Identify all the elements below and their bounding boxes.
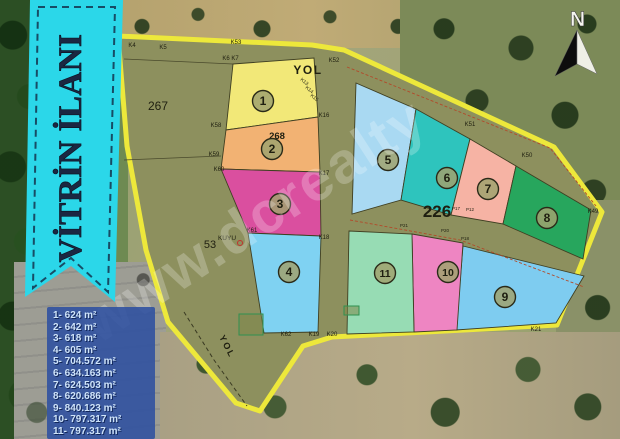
parcel-9-number: 9 <box>502 290 509 304</box>
parcel-11-badge: 11 <box>375 263 396 284</box>
map-point-label: K62 <box>281 332 292 338</box>
parcel-1-number: 1 <box>260 94 267 108</box>
parcel-6-badge: 6 <box>437 168 458 189</box>
map-point-label: P17 <box>452 206 461 211</box>
map-point-label: P20 <box>441 228 450 233</box>
map-point-label: K61 <box>247 228 258 234</box>
structure-rect-large <box>239 314 263 335</box>
listing-image: 267 53 268 226 YOL YOL KUYU K4 K5 K53 K6… <box>0 0 620 439</box>
parcel-2-number: 2 <box>269 142 276 156</box>
well-label: KUYU <box>218 235 236 242</box>
parcel-6-number: 6 <box>444 171 451 185</box>
parcel-8-badge: 8 <box>537 208 558 229</box>
map-point-label: K60 <box>214 167 225 173</box>
area-list-panel: 1- 624 m² 2- 642 m² 3- 618 m² 4- 605 m² … <box>47 307 155 439</box>
area-list-item: 5- 704.572 m² <box>53 356 155 368</box>
parcel-10-badge: 10 <box>438 262 459 283</box>
parcel-10-number: 10 <box>442 267 454 279</box>
area-list-item: 3- 618 m² <box>53 333 155 345</box>
parcel-4-badge: 4 <box>279 262 300 283</box>
map-point-label: K19 <box>309 332 320 338</box>
parcel-5-badge: 5 <box>378 150 399 171</box>
parcel-9-badge: 9 <box>495 287 516 308</box>
map-point-label: K5 <box>159 45 167 51</box>
parcel-7-number: 7 <box>485 182 492 196</box>
map-point-label: K18 <box>319 235 330 241</box>
map-point-label: K58 <box>211 123 222 129</box>
area-list-item: 8- 620.686 m² <box>53 391 155 403</box>
compass-rose: N <box>545 2 615 92</box>
area-list-item: 6- 634.163 m² <box>53 368 155 380</box>
parcel-4-number: 4 <box>286 265 293 279</box>
map-point-label: K52 <box>329 58 340 64</box>
parcel-7-badge: 7 <box>478 179 499 200</box>
north-arrow-icon <box>577 30 597 74</box>
area-list-item: 1- 624 m² <box>53 310 155 322</box>
map-point-label: K49 <box>588 209 599 215</box>
road-top-label: YOL <box>293 63 322 77</box>
parcel-11-number: 11 <box>379 268 390 280</box>
compass-north-label: N <box>570 8 585 31</box>
block-53-label: 53 <box>204 239 216 251</box>
road-226-label: 226 <box>423 202 451 221</box>
structure-rect-small <box>344 306 359 315</box>
map-point-label: K53 <box>231 40 242 46</box>
banner-title: VİTRİN İLANI <box>51 34 89 263</box>
area-list-item: 4- 605 m² <box>53 345 155 357</box>
parcel-8-number: 8 <box>544 211 551 225</box>
parcel-5-number: 5 <box>385 153 392 167</box>
map-point-label: P12 <box>466 207 475 212</box>
map-point-label: K50 <box>522 153 533 159</box>
parcel-1-badge: 1 <box>253 91 274 112</box>
map-point-label: K20 <box>327 332 338 338</box>
map-point-label: K6 <box>222 56 230 62</box>
map-point-label: K16 <box>319 113 330 119</box>
banner-ribbon: VİTRİN İLANI <box>0 0 140 320</box>
map-point-label: K51 <box>465 122 476 128</box>
parcel-3-badge: 3 <box>270 194 291 215</box>
map-point-label: P18 <box>461 236 470 241</box>
parcel-10-region <box>412 234 463 332</box>
area-list-item: 10- 797.317 m² <box>53 414 155 426</box>
map-point-label: P21 <box>400 223 409 228</box>
parcel-2-badge: 2 <box>262 139 283 160</box>
area-list-item: 7- 624.503 m² <box>53 380 155 392</box>
north-arrow-icon <box>555 30 577 76</box>
map-point-label: K21 <box>531 327 542 333</box>
map-point-label: K7 <box>231 56 239 62</box>
parcel-3-number: 3 <box>277 197 284 211</box>
map-point-label: K17 <box>319 171 330 177</box>
area-list-item: 11- 797.317 m² <box>53 426 155 438</box>
block-267-label: 267 <box>148 99 168 113</box>
area-list-item: 2- 642 m² <box>53 322 155 334</box>
map-point-label: K59 <box>209 152 220 158</box>
area-list-item: 9- 840.123 m² <box>53 403 155 415</box>
